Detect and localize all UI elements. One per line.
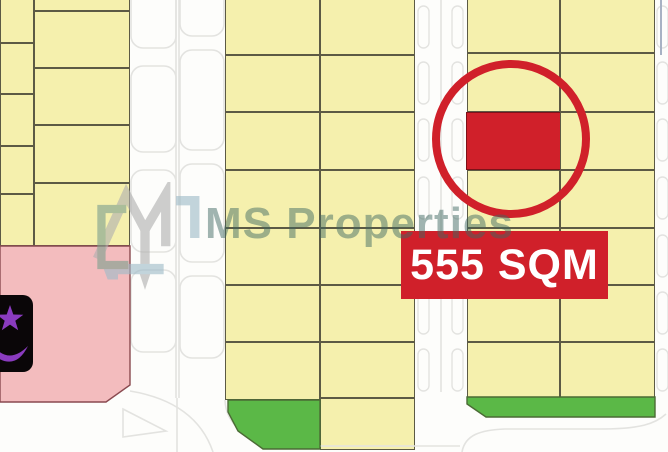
plot-map: 555 SQM MS Properties [0,0,668,452]
parking-bay [657,349,668,391]
area-banner: 555 SQM [401,231,608,299]
road-markings-layer [0,0,668,452]
parking-bay [180,0,224,36]
traffic-island [123,409,166,437]
green-plot [467,397,655,417]
parking-bay [180,164,224,262]
road-line [462,414,666,452]
parking-bay [418,349,429,391]
parking-bay [452,349,463,391]
parking-bay [180,276,224,358]
green-plot [228,400,320,449]
area-label: 555 SQM [410,241,599,290]
parking-bay [657,177,668,219]
parking-bay [657,6,668,48]
parking-bay [657,292,668,334]
parking-bay [452,6,463,48]
parking-bay [180,50,224,150]
parking-bay [418,6,429,48]
parking-bay [418,62,429,104]
parking-bay [418,119,429,161]
parking-bay [657,62,668,104]
parking-bay [418,177,429,219]
parking-bay [452,119,463,161]
parking-bay [131,0,176,48]
road-line [130,391,213,452]
highlight-circle [436,64,586,214]
parking-bay [131,270,176,352]
parking-bay [657,235,668,277]
parking-bay [657,119,668,161]
parking-bay [131,170,176,252]
parking-bay [131,66,176,152]
